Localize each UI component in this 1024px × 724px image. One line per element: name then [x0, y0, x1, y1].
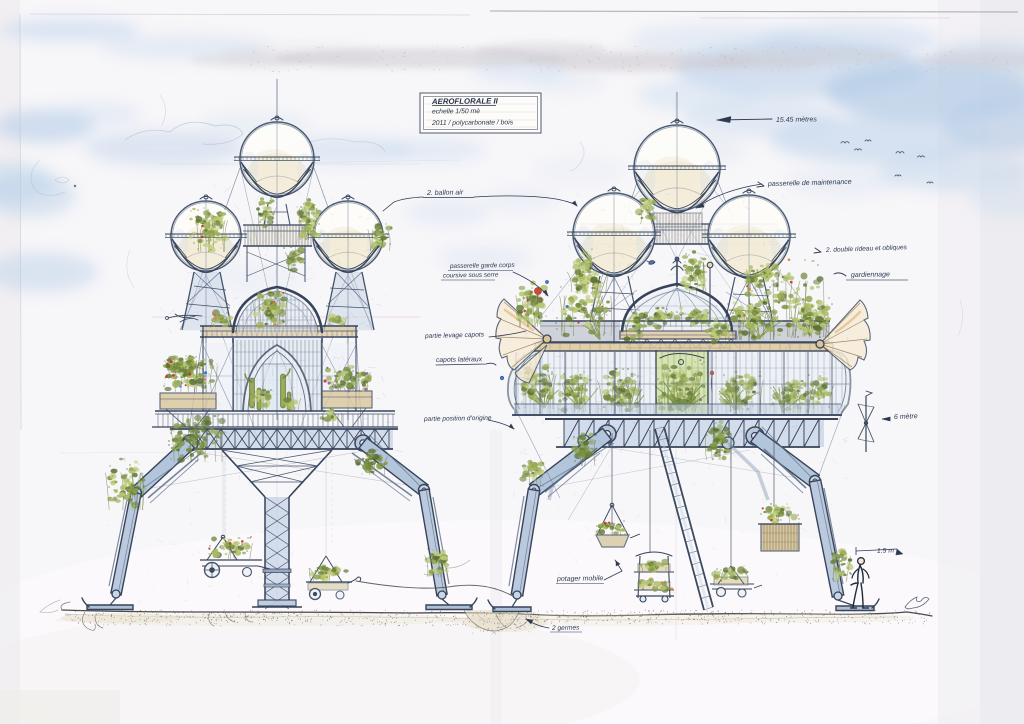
svg-text:passerelle garde corps: passerelle garde corps [449, 262, 516, 270]
svg-text:2 germes: 2 germes [551, 625, 580, 633]
svg-text:1.5 m: 1.5 m [877, 547, 895, 555]
svg-text:15.45 mètres: 15.45 mètres [776, 116, 817, 124]
svg-text:coursive sous serre: coursive sous serre [443, 272, 499, 280]
svg-text:echelle 1/50 mè: echelle 1/50 mè [432, 108, 480, 115]
svg-text:2. ballon air: 2. ballon air [426, 189, 464, 197]
svg-text:capots latéraux: capots latéraux [436, 356, 483, 364]
svg-text:partie position d'origine: partie position d'origine [423, 415, 492, 423]
svg-text:potager mobile: potager mobile [556, 575, 604, 583]
svg-text:6 mètre: 6 mètre [894, 413, 918, 421]
svg-text:2011 / polycarbonate / bois: 2011 / polycarbonate / bois [431, 119, 514, 127]
svg-text:gardiennage: gardiennage [851, 271, 890, 279]
svg-text:AEROFLORALE II: AEROFLORALE II [431, 96, 499, 106]
